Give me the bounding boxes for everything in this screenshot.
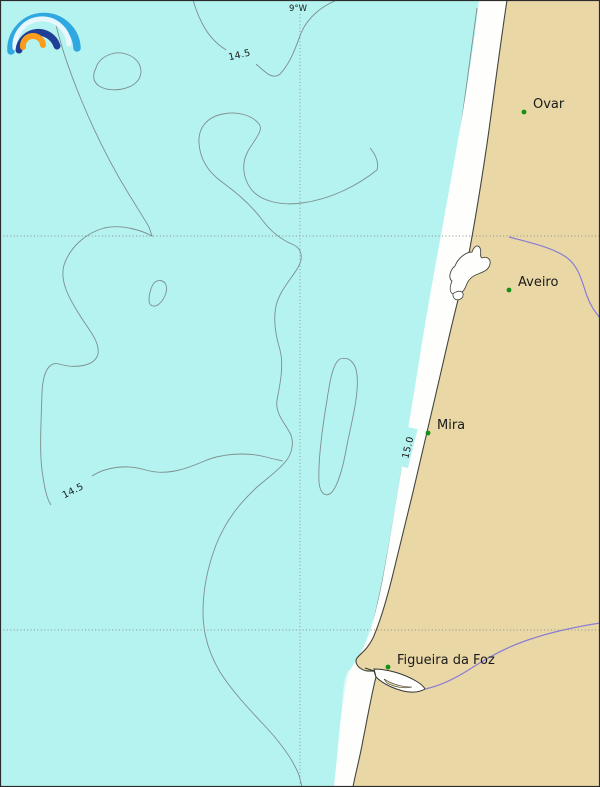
city-marker-figueira-da-foz: Figueira da Foz (386, 653, 495, 669)
city-dot (507, 288, 512, 293)
coastal-sst-map: 9°W 14.5 14.5 15.0 Ovar Aveiro Mira Figu… (0, 0, 600, 787)
city-dot (386, 665, 391, 670)
meridian-label: 9°W (289, 4, 308, 14)
city-dot (426, 431, 431, 436)
map-canvas[interactable]: 9°W 14.5 14.5 15.0 Ovar Aveiro Mira Figu… (0, 0, 600, 787)
city-label: Figueira da Foz (397, 653, 495, 668)
city-dot (522, 110, 527, 115)
lagoon-islet (453, 291, 463, 300)
city-label: Aveiro (518, 275, 558, 290)
city-label: Ovar (533, 97, 565, 112)
city-label: Mira (437, 418, 465, 433)
